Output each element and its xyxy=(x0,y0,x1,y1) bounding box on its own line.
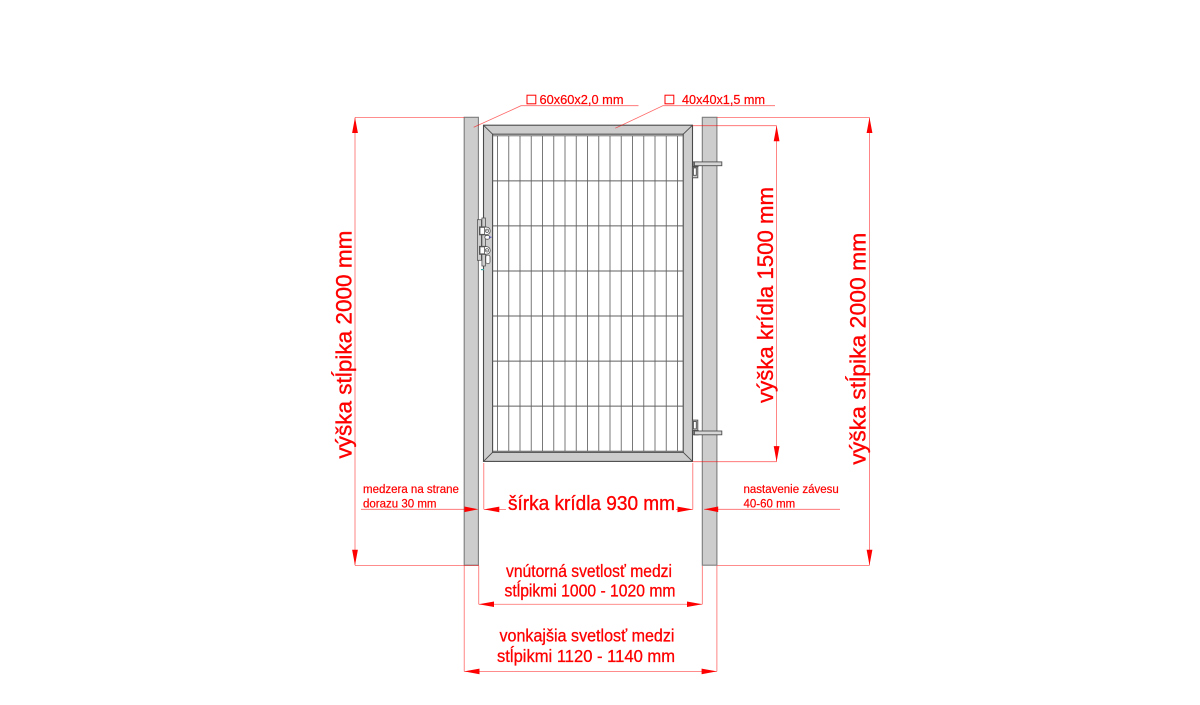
svg-text:stĺpikmi 1120 - 1140 mm: stĺpikmi 1120 - 1140 mm xyxy=(497,645,675,666)
svg-text:vnútorná svetlosť medzi: vnútorná svetlosť medzi xyxy=(506,561,672,581)
svg-text:dorazu 30 mm: dorazu 30 mm xyxy=(363,498,437,510)
svg-text:nastavenie závesu: nastavenie závesu xyxy=(744,484,839,496)
svg-text:medzera na strane: medzera na strane xyxy=(363,484,459,496)
svg-text:vonkajšia svetlosť medzi: vonkajšia svetlosť medzi xyxy=(500,626,675,646)
svg-text:výška stĺpika 2000 mm: výška stĺpika 2000 mm xyxy=(332,231,357,459)
svg-text:60x60x2,0 mm: 60x60x2,0 mm xyxy=(540,92,624,107)
svg-text:výška stĺpika 2000 mm: výška stĺpika 2000 mm xyxy=(846,233,871,465)
svg-text:40x40x1,5 mm: 40x40x1,5 mm xyxy=(682,92,765,107)
svg-text:stĺpikmi 1000 - 1020 mm: stĺpikmi 1000 - 1020 mm xyxy=(505,579,676,600)
svg-text:výška krídla 1500 mm: výška krídla 1500 mm xyxy=(753,187,778,403)
svg-text:40-60 mm: 40-60 mm xyxy=(744,498,796,510)
svg-text:šírka krídla 930 mm: šírka krídla 930 mm xyxy=(508,493,675,515)
